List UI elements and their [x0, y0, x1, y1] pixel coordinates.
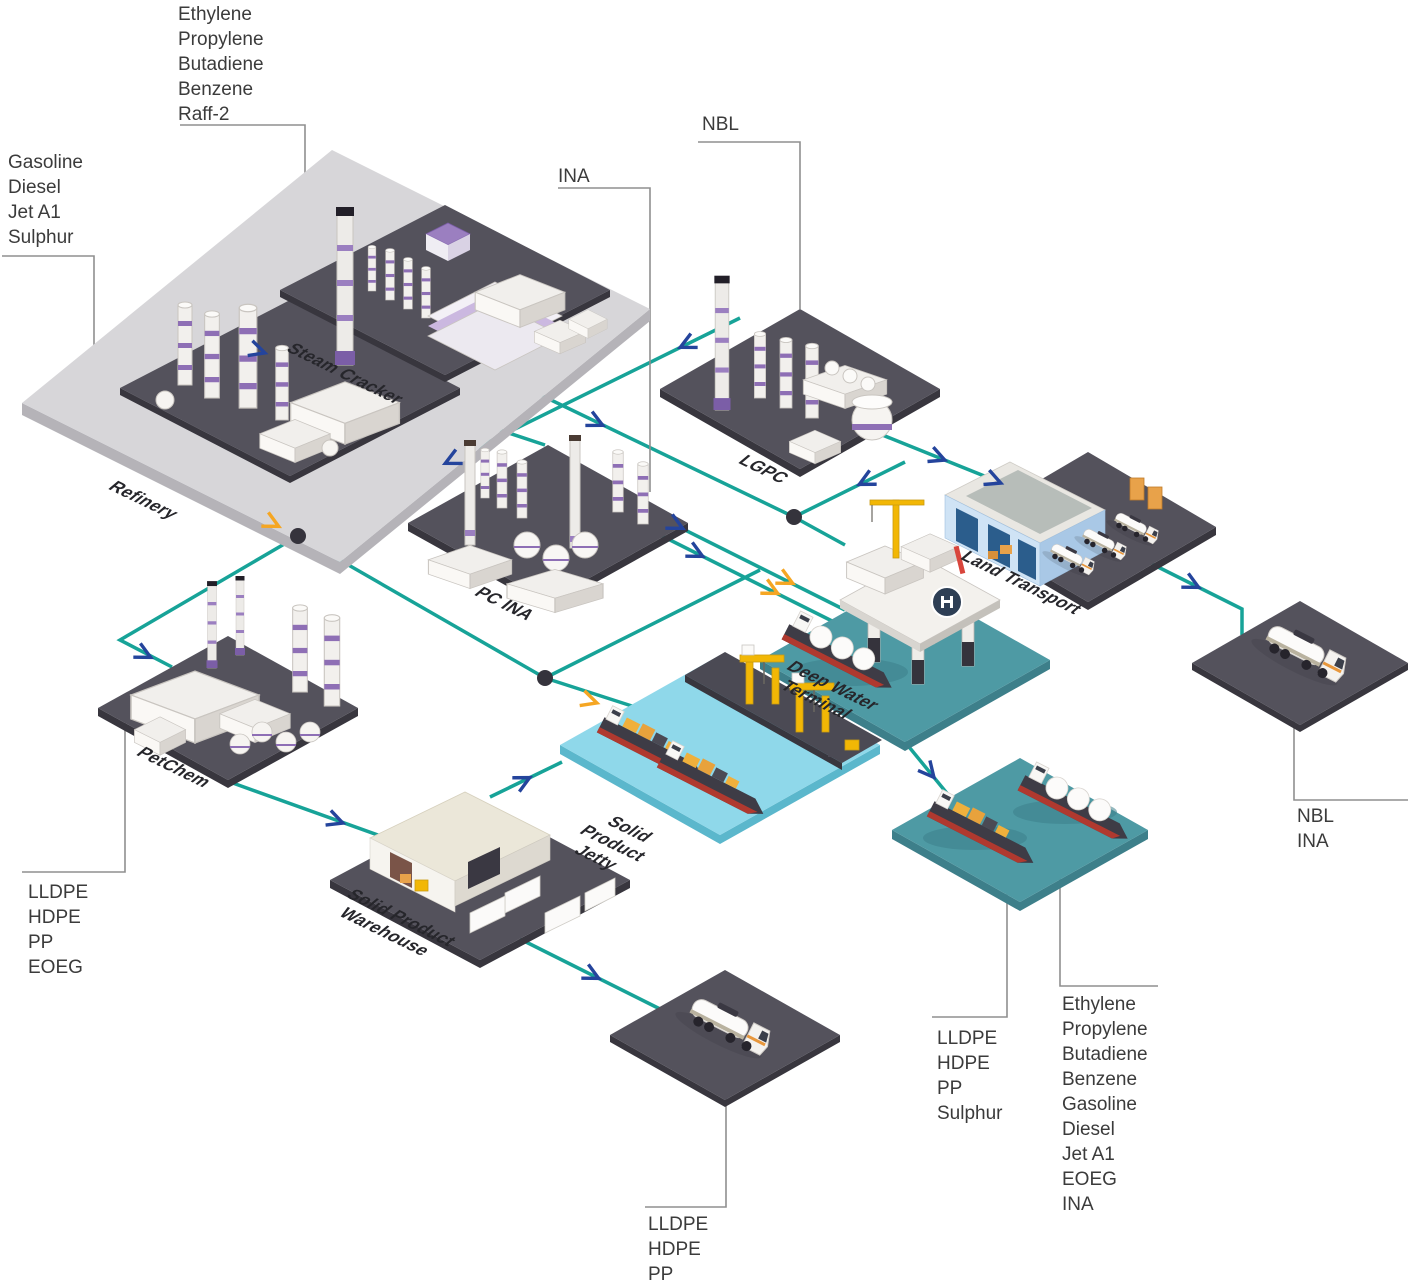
facility-export-ships [892, 758, 1148, 911]
facility-solid-product-warehouse [330, 792, 630, 968]
label-petchem-products: LLDPE HDPE PP EOEG [28, 880, 88, 980]
label-nbl-feed: NBL [702, 112, 739, 137]
label-ina-feed: INA [558, 164, 590, 189]
label-solid-ship-products: LLDPE HDPE PP Sulphur [937, 1026, 1003, 1126]
diagram-art [0, 0, 1408, 1280]
label-right-truck-products: NBL INA [1297, 804, 1334, 854]
label-steam-cracker-products: Ethylene Propylene Butadiene Benzene Raf… [178, 2, 264, 127]
facility-truck-bottom [610, 970, 840, 1107]
facility-truck-right [1192, 601, 1408, 732]
label-liquid-ship-products: Ethylene Propylene Butadiene Benzene Gas… [1062, 992, 1148, 1217]
label-bottom-truck-products: LLDPE HDPE PP [648, 1212, 708, 1280]
diagram-canvas: Ethylene Propylene Butadiene Benzene Raf… [0, 0, 1408, 1280]
label-refinery-products: Gasoline Diesel Jet A1 Sulphur [8, 150, 83, 250]
facility-land-transport [945, 452, 1216, 610]
